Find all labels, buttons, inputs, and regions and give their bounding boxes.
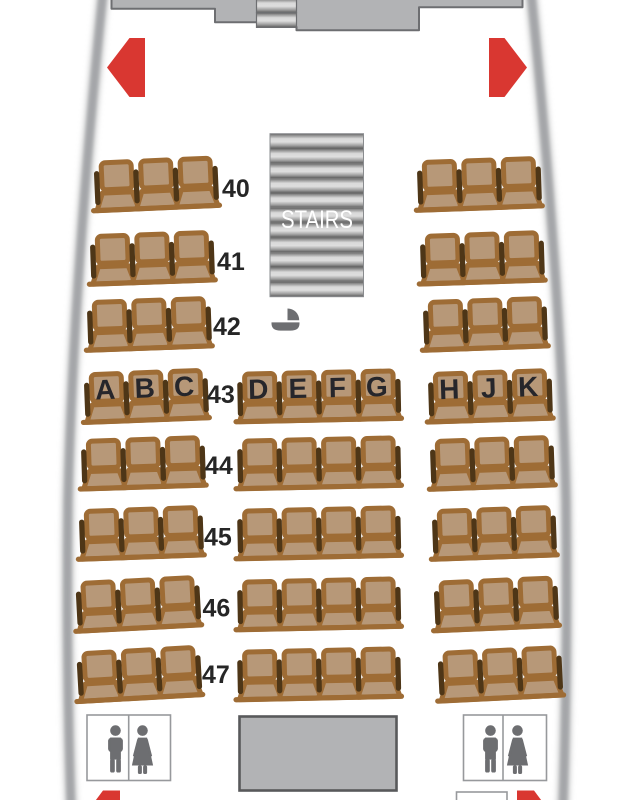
svg-text:42: 42 xyxy=(213,313,241,341)
svg-text:40: 40 xyxy=(222,175,250,203)
svg-text:C: C xyxy=(173,371,194,403)
svg-text:J: J xyxy=(480,372,497,403)
svg-text:44: 44 xyxy=(205,452,233,480)
svg-text:B: B xyxy=(134,372,155,404)
svg-text:G: G xyxy=(366,371,388,402)
svg-text:E: E xyxy=(288,373,307,404)
svg-text:H: H xyxy=(439,373,460,405)
svg-text:F: F xyxy=(328,372,346,403)
svg-text:43: 43 xyxy=(207,381,235,409)
svg-text:45: 45 xyxy=(204,524,232,552)
svg-text:D: D xyxy=(248,374,269,405)
svg-text:STAIRS: STAIRS xyxy=(281,206,353,234)
svg-text:46: 46 xyxy=(203,595,231,623)
svg-text:K: K xyxy=(518,371,539,403)
svg-text:41: 41 xyxy=(217,248,245,276)
svg-text:A: A xyxy=(95,374,116,406)
svg-text:47: 47 xyxy=(202,661,230,689)
